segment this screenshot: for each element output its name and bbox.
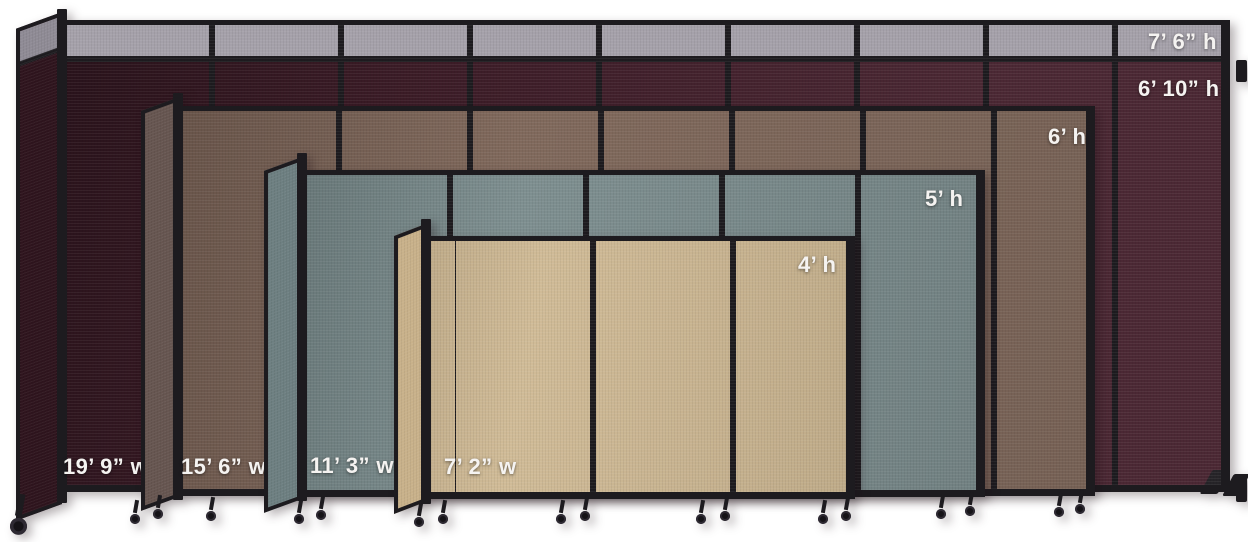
caster-wheel-icon <box>206 497 218 523</box>
room-divider-size-comparison: 7’ 6” h 6’ 10” h 19’ 9” w 6’ h 15’ 6” w … <box>0 0 1248 542</box>
shading-overlay <box>431 241 846 492</box>
divider-mocha: 6’ h 15’ 6” w <box>0 0 1248 542</box>
caster-wheel-icon <box>720 497 732 523</box>
caster-wheel-icon <box>936 495 948 521</box>
caster-wheel-icon <box>294 500 306 526</box>
caster-wheel-icon <box>130 500 142 526</box>
divider-sand: 4’ h 7’ 2” w <box>0 0 1248 542</box>
caster-wheel-icon <box>1054 493 1066 519</box>
width-label: 11’ 3” w <box>310 453 394 479</box>
corner-post <box>173 93 183 500</box>
caster-wheel-icon <box>1075 490 1087 516</box>
caster-wheel-icon <box>841 497 853 523</box>
return-panel <box>16 12 62 521</box>
end-foot-bracket <box>1222 474 1248 496</box>
caster-wheel-icon <box>696 500 708 526</box>
width-label: 15’ 6” w <box>181 454 266 480</box>
caster-wheel-icon <box>580 497 592 523</box>
shading-overlay <box>67 25 1221 485</box>
caster-wheel-icon <box>438 500 450 526</box>
wall-bracket-icon <box>1236 60 1247 82</box>
caster-wheel-icon <box>556 500 568 526</box>
top-accent-band <box>67 25 1221 62</box>
corner-post <box>297 153 307 501</box>
caster-wheel-icon <box>153 495 165 521</box>
caster-wheel-icon <box>316 496 328 522</box>
return-panel <box>264 157 302 513</box>
corner-post <box>57 9 67 503</box>
end-foot-bracket <box>1200 470 1231 494</box>
panel-seams <box>67 25 1221 485</box>
caster-wheel-icon <box>414 503 426 529</box>
shading-overlay <box>183 111 1086 489</box>
panel-run <box>302 170 985 497</box>
shading-overlay <box>307 175 976 490</box>
panel-seams <box>183 111 1086 489</box>
divider-cranberry: 7’ 6” h 6’ 10” h 19’ 9” w <box>0 0 1248 542</box>
panel-run <box>178 106 1095 496</box>
return-top-accent-band <box>20 17 58 66</box>
caster-wheel-icon <box>818 500 830 526</box>
corner-post <box>421 219 431 504</box>
panel-run <box>426 236 855 499</box>
height-label: 5’ h <box>925 186 963 212</box>
panel-run <box>62 20 1230 492</box>
panel-seams <box>431 241 846 492</box>
height-label: 4’ h <box>798 252 836 278</box>
return-panel <box>141 97 179 511</box>
height-label-top-panel: 7’ 6” h <box>1148 29 1217 55</box>
width-label: 7’ 2” w <box>444 454 517 480</box>
panel-seams <box>307 175 976 490</box>
height-label: 6’ 10” h <box>1138 76 1219 102</box>
width-label: 19’ 9” w <box>63 454 148 480</box>
return-panel <box>394 223 428 514</box>
caster-wheel-icon <box>10 494 30 538</box>
height-label: 6’ h <box>1048 124 1086 150</box>
caster-wheel-icon <box>965 492 977 518</box>
wall-bracket-icon <box>1236 476 1247 502</box>
divider-slate: 5’ h 11’ 3” w <box>0 0 1248 542</box>
